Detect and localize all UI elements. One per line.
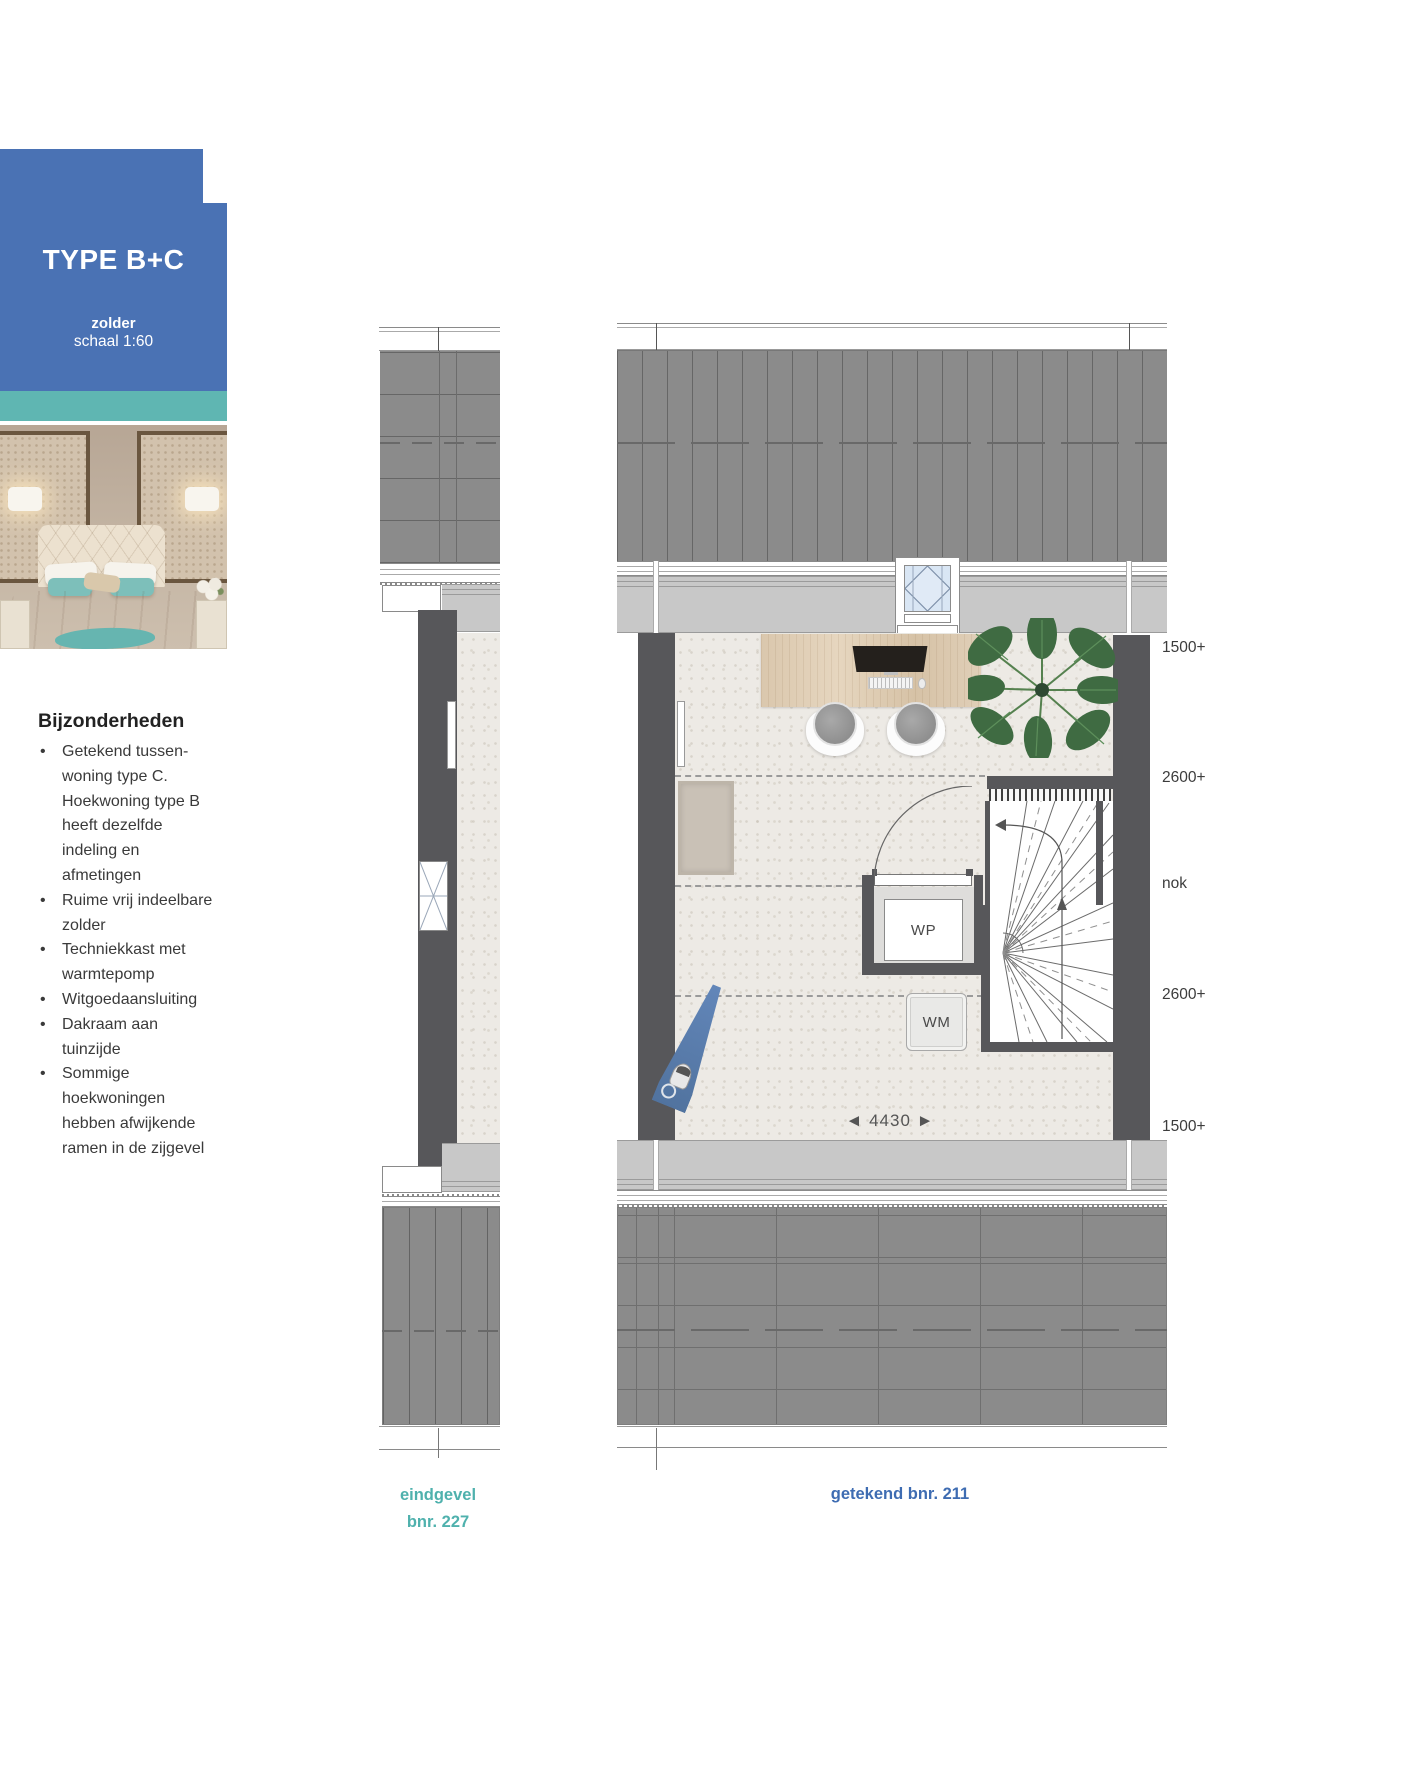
strip-gutter-top	[379, 327, 500, 351]
caption-eindgevel: eindgevel bnr. 227	[363, 1482, 513, 1536]
mattress	[678, 781, 734, 875]
wp-unit: WP	[884, 899, 963, 961]
strip-floor	[457, 633, 500, 1143]
details-heading: Bijzonderheden	[38, 710, 184, 733]
right-wall	[1113, 635, 1150, 1140]
main-roof-midline	[617, 442, 1167, 444]
stair-wall-left-upper	[985, 801, 990, 905]
side-window	[419, 861, 448, 931]
door-swing-arc	[874, 786, 973, 885]
stair-wall-hatch	[989, 789, 1111, 801]
wp-wall-left	[862, 875, 874, 975]
nightstand-left	[0, 600, 30, 649]
stair-wall-bottom	[981, 1042, 1113, 1052]
main-gutter-top	[617, 323, 1167, 350]
strip-gutter-tick	[438, 327, 439, 351]
keyboard	[868, 677, 913, 689]
list-item: Techniekkast met warmtepomp	[38, 938, 216, 988]
strip-roof-dash	[382, 1330, 500, 1332]
height-contour-2600	[675, 775, 985, 777]
strip-canopy-top	[382, 585, 441, 612]
sconce-left	[8, 487, 42, 511]
type-card	[0, 203, 227, 391]
party-wall-gap	[653, 1140, 659, 1190]
caption-eindgevel-line2: bnr. 227	[363, 1509, 513, 1536]
stair-wall-left	[981, 905, 990, 1042]
strip-eaves-bottom	[382, 1196, 500, 1207]
party-wall-tick	[656, 323, 657, 350]
strip-caption-band	[379, 1426, 500, 1450]
ironing-board	[699, 986, 735, 1116]
main-caption-tick	[656, 1428, 657, 1470]
party-wall-gap	[1126, 1140, 1132, 1190]
height-label-2600-top: 2600+	[1162, 769, 1206, 787]
party-wall-tick	[1129, 323, 1130, 350]
dormer-sill	[904, 614, 951, 623]
washing-machine: WM	[906, 993, 967, 1051]
roof-seam	[658, 1207, 659, 1425]
dim-arrow-right-icon: ►	[917, 1111, 935, 1130]
caption-getekend: getekend bnr. 211	[780, 1485, 1020, 1504]
height-label-1500-bottom: 1500+	[1162, 1118, 1206, 1136]
desk-chair	[887, 702, 945, 756]
caption-eindgevel-line1: eindgevel	[363, 1482, 513, 1509]
monitor	[851, 646, 929, 672]
main-caption-band	[617, 1426, 1167, 1448]
details-list: Getekend tussen-woning type C. Hoekwonin…	[38, 740, 216, 1162]
wm-label: WM	[923, 1014, 951, 1031]
strip-caption-tick	[438, 1428, 439, 1458]
sconce-right	[185, 487, 219, 511]
list-item: Ruime vrij indeelbare zolder	[38, 889, 216, 939]
party-wall-gap	[1126, 561, 1132, 633]
main-roof-top	[617, 350, 1167, 561]
main-eaves-bottom	[617, 1190, 1167, 1205]
wp-label: WP	[911, 922, 936, 939]
strip-ridge-line	[380, 442, 500, 444]
wall-niche	[677, 701, 685, 767]
type-title: TYPE B+C	[0, 244, 227, 276]
bedroom-photo	[0, 425, 227, 649]
nightstand-right	[196, 600, 227, 649]
strip-eaves-top	[380, 563, 500, 583]
main-eaves-top	[617, 561, 1167, 576]
height-contour-nok	[675, 885, 862, 887]
list-item: Witgoedaansluiting	[38, 988, 216, 1013]
monitor-stand	[884, 672, 898, 675]
strip-canopy-bottom	[382, 1166, 442, 1193]
strip-wall-band-bottom	[442, 1143, 500, 1192]
desk-chair	[806, 702, 864, 756]
strip-roof-top	[380, 351, 500, 563]
brochure-page: TYPE B+C zolder schaal 1:60 Bijzonderhed…	[0, 0, 1417, 1772]
main-wall-band-bottom	[617, 1140, 1167, 1190]
strip-wall-niche	[447, 701, 456, 769]
height-label-1500-top: 1500+	[1162, 639, 1206, 657]
main-roof-dash	[617, 1329, 1167, 1331]
monstera-plant	[968, 618, 1118, 758]
list-item: Dakraam aan tuinzijde	[38, 1013, 216, 1063]
strip-roof-seam	[439, 351, 440, 563]
scale-label: schaal 1:60	[0, 333, 227, 351]
mouse	[918, 678, 926, 689]
strip-roof-seam	[456, 351, 457, 563]
list-item: Getekend tussen-woning type C. Hoekwonin…	[38, 740, 216, 889]
wp-wall-bottom	[862, 963, 983, 975]
stair-wall-top	[987, 776, 1113, 789]
main-roof-bottom	[617, 1207, 1167, 1425]
type-card-notch	[0, 149, 203, 205]
flower-bouquet	[193, 577, 227, 601]
floor-label: zolder	[0, 315, 227, 332]
height-label-nok: nok	[1162, 875, 1187, 893]
height-label-2600-bottom: 2600+	[1162, 986, 1206, 1004]
dim-value: 4430	[869, 1111, 911, 1130]
stairwell	[987, 801, 1113, 1042]
teal-stripe	[0, 391, 227, 421]
width-dimension: ◄ 4430 ►	[800, 1111, 980, 1131]
dormer-glass	[904, 565, 951, 612]
party-wall-gap	[653, 561, 659, 633]
list-item: Sommige hoekwoningen hebben afwijkende r…	[38, 1062, 216, 1161]
strip-roof-bottom	[382, 1207, 500, 1425]
dim-arrow-left-icon: ◄	[846, 1111, 864, 1130]
